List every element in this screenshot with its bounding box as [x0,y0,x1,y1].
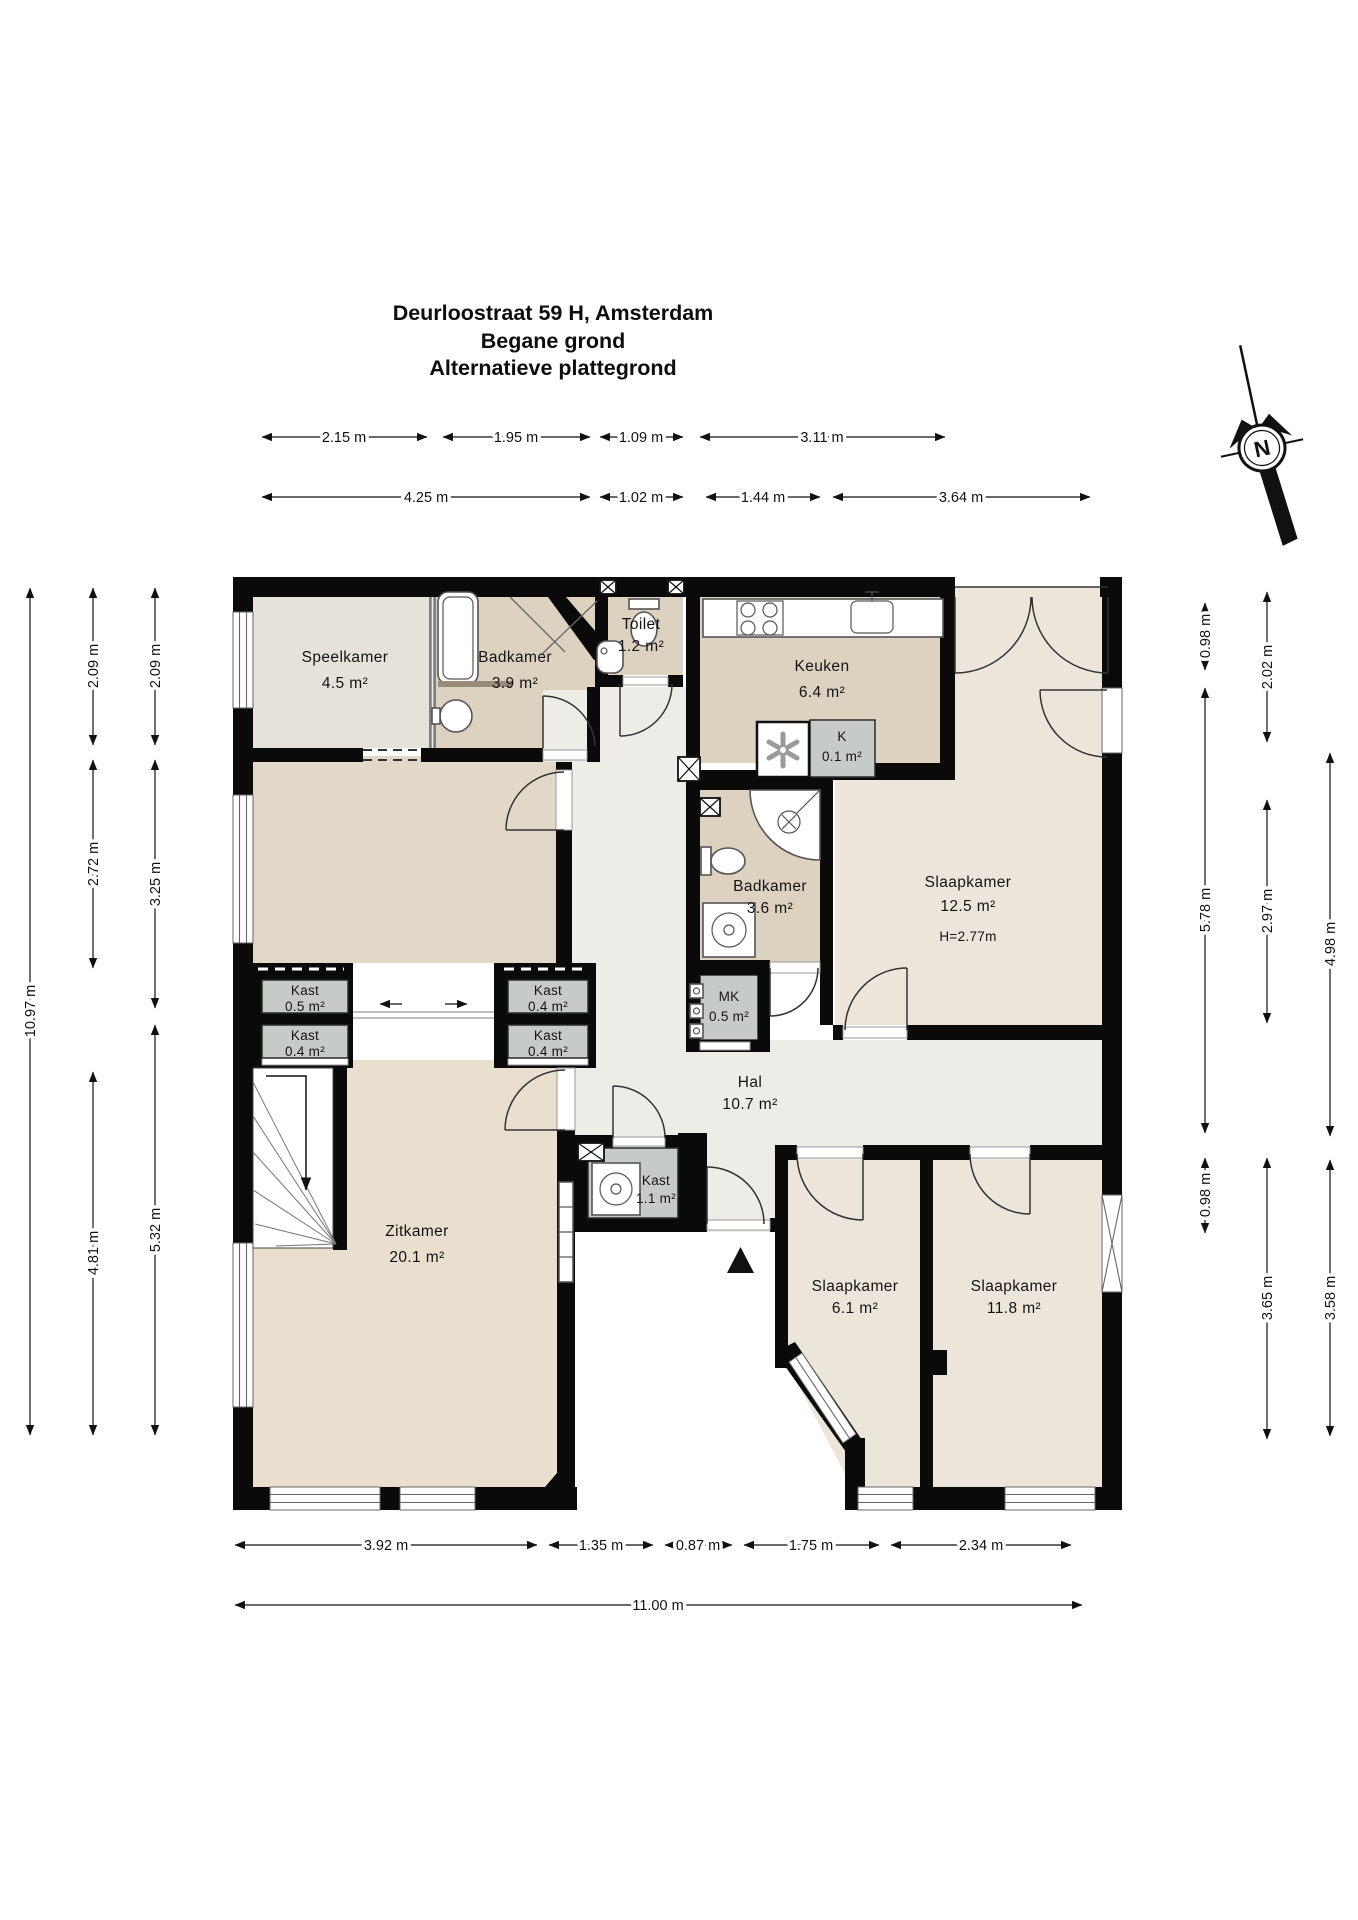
floorplan-page: Deurloostraat 59 H, Amsterdam Begane gro… [0,0,1358,1920]
dim-top-inner-4: 3.11 m [800,430,843,446]
label-kast4-area: 0.4 m² [528,1044,568,1059]
label-badkamer1-name: Badkamer [478,649,552,666]
label-kast3-name: Kast [534,983,562,998]
dim-top-outer-3: 1.44 m [741,490,785,506]
floor-speelkamer [253,597,436,748]
label-kast3-area: 0.4 m² [528,999,568,1014]
dim-right-mid-2: 2.97 m [1260,889,1276,933]
label-slaapkamer125-area: 12.5 m² [940,898,995,915]
window-zitkamer-left [233,1243,253,1407]
opening-balcony-door [1102,688,1122,753]
dim-bottom-inner-2: 1.35 m [579,1538,623,1554]
title-block: Deurloostraat 59 H, Amsterdam Begane gro… [393,301,714,380]
label-kast1-area: 0.5 m² [285,999,325,1014]
dim-right-mid-1: 2.02 m [1260,645,1276,689]
dim-top-inner-3: 1.09 m [619,430,663,446]
dim-right-outer-2: 3.58 m [1323,1276,1339,1320]
stairs [253,1068,336,1248]
title-line-2: Begane grond [481,329,626,353]
dim-top-outer-1: 4.25 m [404,490,448,506]
label-kast2-area: 0.4 m² [285,1044,325,1059]
dim-bottom-inner-5: 2.34 m [959,1538,1003,1554]
dim-right-mid-3: 3.65 m [1260,1276,1276,1320]
label-slaapkamer61-area: 6.1 m² [832,1300,878,1317]
window-slaapkamer118-right [1102,1195,1122,1292]
label-speelkamer-name: Speelkamer [302,649,389,666]
label-slaapkamer118-area: 11.8 m² [987,1300,1041,1317]
dim-top-inner-1: 2.15 m [322,430,366,446]
label-kast2-name: Kast [291,1028,319,1043]
bathtub [438,592,478,684]
label-badkamer2-name: Badkamer [733,878,807,895]
label-slaapkamer61-name: Slaapkamer [812,1278,899,1295]
entrance-arrow [727,1247,754,1273]
toilet2-tank [701,847,711,875]
washer-kast [592,1163,640,1215]
window-slaapkamer118-bottom [1005,1487,1095,1510]
label-toilet-name: Toilet [622,616,661,633]
north-compass: N [1199,337,1324,555]
label-badkamer2-area: 3.6 m² [747,900,793,917]
window-zitkamer-bottom-2 [400,1487,475,1510]
label-kast11-area: 1.1 m² [636,1191,676,1206]
dim-left-mid-2: 2.72 m [86,842,102,886]
window-speelkamer [233,612,253,708]
dim-top-inner-2: 1.95 m [494,430,538,446]
window-slaapkamer61-bottom [858,1487,913,1510]
label-kast1-name: Kast [291,983,319,998]
label-slaapkamer125-name: Slaapkamer [925,874,1012,891]
title-line-1: Deurloostraat 59 H, Amsterdam [393,301,714,325]
label-kast4-name: Kast [534,1028,562,1043]
meter-boxes [690,984,703,1038]
dim-left-mid-3: 4.81 m [86,1231,102,1275]
title-line-3: Alternatieve plattegrond [429,356,676,380]
label-keuken-area: 6.4 m² [799,684,845,701]
dim-bottom-inner-4: 1.75 m [789,1538,833,1554]
label-zitkamer-name: Zitkamer [385,1223,448,1240]
label-mk-area: 0.5 m² [709,1009,749,1024]
floorplan-svg: Deurloostraat 59 H, Amsterdam Begane gro… [0,0,1358,1920]
label-zitkamer-area: 20.1 m² [389,1249,444,1266]
toilet-tank [629,599,659,609]
dim-left-mid-1: 2.09 m [86,644,102,688]
label-kast11-name: Kast [642,1173,670,1188]
floor-slaapkamer-118 [933,1160,1102,1487]
dim-right-outer-1: 4.98 m [1323,922,1339,966]
window-zitkamer-bottom-1 [270,1487,380,1510]
dim-top-outer-2: 1.02 m [619,490,663,506]
label-hal-area: 10.7 m² [722,1096,777,1113]
label-slaapkamer118-name: Slaapkamer [971,1278,1058,1295]
window-eetkamer [233,795,253,943]
label-toilet-area: 1.2 m² [618,638,664,655]
dim-right-inner-2: 5.78 m [1198,888,1214,932]
dim-top-outer-4: 3.64 m [939,490,983,506]
dim-left-inner-1: 2.09 m [148,644,164,688]
label-badkamer1-area: 3.9 m² [492,675,538,692]
kitchen-counter [703,599,943,637]
dim-bottom-inner-1: 3.92 m [364,1538,408,1554]
washbasin-badkamer [440,700,472,732]
dim-left-inner-3: 5.32 m [148,1208,164,1252]
label-mk-name: MK [719,989,740,1004]
toilet2-bowl [711,848,745,874]
dim-left-inner-2: 3.25 m [148,862,164,906]
dim-bottom-outer: 11.00 m [632,1598,683,1614]
dim-right-inner-1: 0.98 m [1198,614,1214,658]
label-speelkamer-area: 4.5 m² [322,675,368,692]
dim-right-inner-3: 0.98 m [1198,1173,1214,1217]
label-k-area: 0.1 m² [822,749,862,764]
label-slaapkamer125-height: H=2.77m [939,929,996,944]
label-k-name: K [837,729,846,744]
label-keuken-name: Keuken [795,658,850,675]
floor-mk [700,975,758,1040]
dim-left-outer: 10.97 m [23,985,39,1037]
label-hal-name: Hal [738,1074,762,1091]
dim-bottom-inner-3: 0.87 m [676,1538,720,1554]
